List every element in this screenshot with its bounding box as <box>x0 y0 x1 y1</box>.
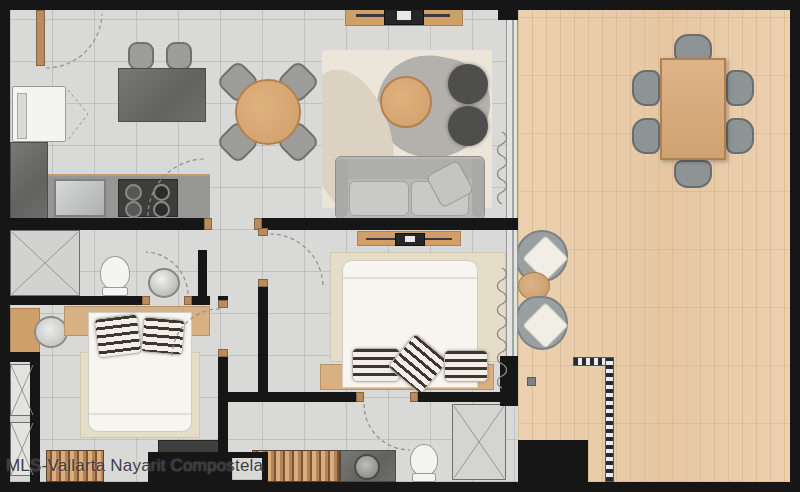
door-jamb <box>258 279 268 287</box>
door-jamb <box>204 218 212 230</box>
entry-door-leaf <box>36 10 45 66</box>
kitchen-sink <box>54 179 106 217</box>
deck-dining-chair <box>726 70 754 106</box>
bedroom2-tv-console <box>357 231 461 246</box>
deck-dining-chair <box>726 118 754 154</box>
wall-bedroom2-bottom <box>225 392 362 402</box>
deck-dining-chair <box>674 160 712 188</box>
pouf <box>448 64 488 104</box>
burner <box>153 201 170 218</box>
door-jamb <box>356 392 364 402</box>
bathroom1-toilet-bowl <box>100 256 130 290</box>
blanket-fold <box>343 277 477 279</box>
wall-bottom <box>0 482 800 492</box>
bathroom2-shower <box>452 404 506 480</box>
door-jamb <box>258 228 268 236</box>
coffee-table <box>380 76 432 128</box>
wall-deck-divider-low <box>500 356 518 406</box>
bathroom1-sink <box>148 268 180 298</box>
door-jamb <box>184 296 192 305</box>
bathroom2-vanity <box>340 450 396 482</box>
island-stool <box>128 42 154 70</box>
sofa-arm <box>472 159 484 217</box>
kitchen-island <box>118 68 206 122</box>
island-stool <box>166 42 192 70</box>
wall-top <box>0 0 800 10</box>
tv-screen <box>397 11 411 20</box>
sliding-glass-door <box>506 10 518 218</box>
kitchen-counter-left <box>10 142 48 220</box>
bathroom2-sink <box>354 454 380 480</box>
bed-pillow <box>141 316 186 356</box>
lounge-chair <box>516 296 568 350</box>
wall-deck-top-stub <box>498 10 518 20</box>
sofa <box>335 156 485 220</box>
burner <box>125 184 142 201</box>
blanket-fold <box>89 413 191 415</box>
bed-pillow <box>94 313 143 358</box>
wall-bathroom1-bottom <box>10 296 150 305</box>
watermark-text: MLS-Vallarta Nayarit Compostela <box>6 456 263 476</box>
wall-mid-horizontal <box>262 218 518 230</box>
fridge <box>12 86 66 142</box>
bedroom1-sink <box>34 316 68 348</box>
wall-deck-block <box>518 440 588 482</box>
wall-left <box>0 0 10 492</box>
bed-pillow <box>444 350 488 382</box>
bedroom2-tv <box>395 233 425 246</box>
door-jamb <box>218 349 228 357</box>
bedroom2-tv-screen <box>405 236 415 242</box>
deck-dining-chair <box>632 118 660 154</box>
fridge-handle <box>17 93 27 139</box>
sofa-arm <box>336 159 348 217</box>
floor-plan: MLS-Vallarta Nayarit Compostela <box>0 0 800 492</box>
sofa-seat-cushion <box>349 181 409 216</box>
burner <box>125 201 142 218</box>
sliding-glass-door <box>506 230 518 356</box>
bathroom2-toilet-bowl <box>410 444 438 476</box>
deck-dining-chair <box>632 70 660 106</box>
deck-drain-channel-vertical <box>605 357 614 482</box>
deck-dining-table <box>660 58 726 160</box>
stove <box>118 179 178 217</box>
wall-hallway-right <box>258 285 268 392</box>
wall-mid-horizontal <box>10 218 210 230</box>
wall-right <box>790 0 800 492</box>
wall-bathroom1-right <box>198 250 207 305</box>
bathroom1-toilet-tank <box>102 287 128 296</box>
burner <box>153 184 170 201</box>
pouf <box>448 106 488 146</box>
door-jamb <box>142 296 150 305</box>
door-jamb <box>410 392 418 402</box>
bathroom1-shower <box>10 230 80 296</box>
bathroom2-toilet-tank <box>412 473 436 482</box>
round-dining-table <box>235 79 301 145</box>
deck-floor-drain <box>527 377 536 386</box>
door-jamb <box>218 300 228 308</box>
